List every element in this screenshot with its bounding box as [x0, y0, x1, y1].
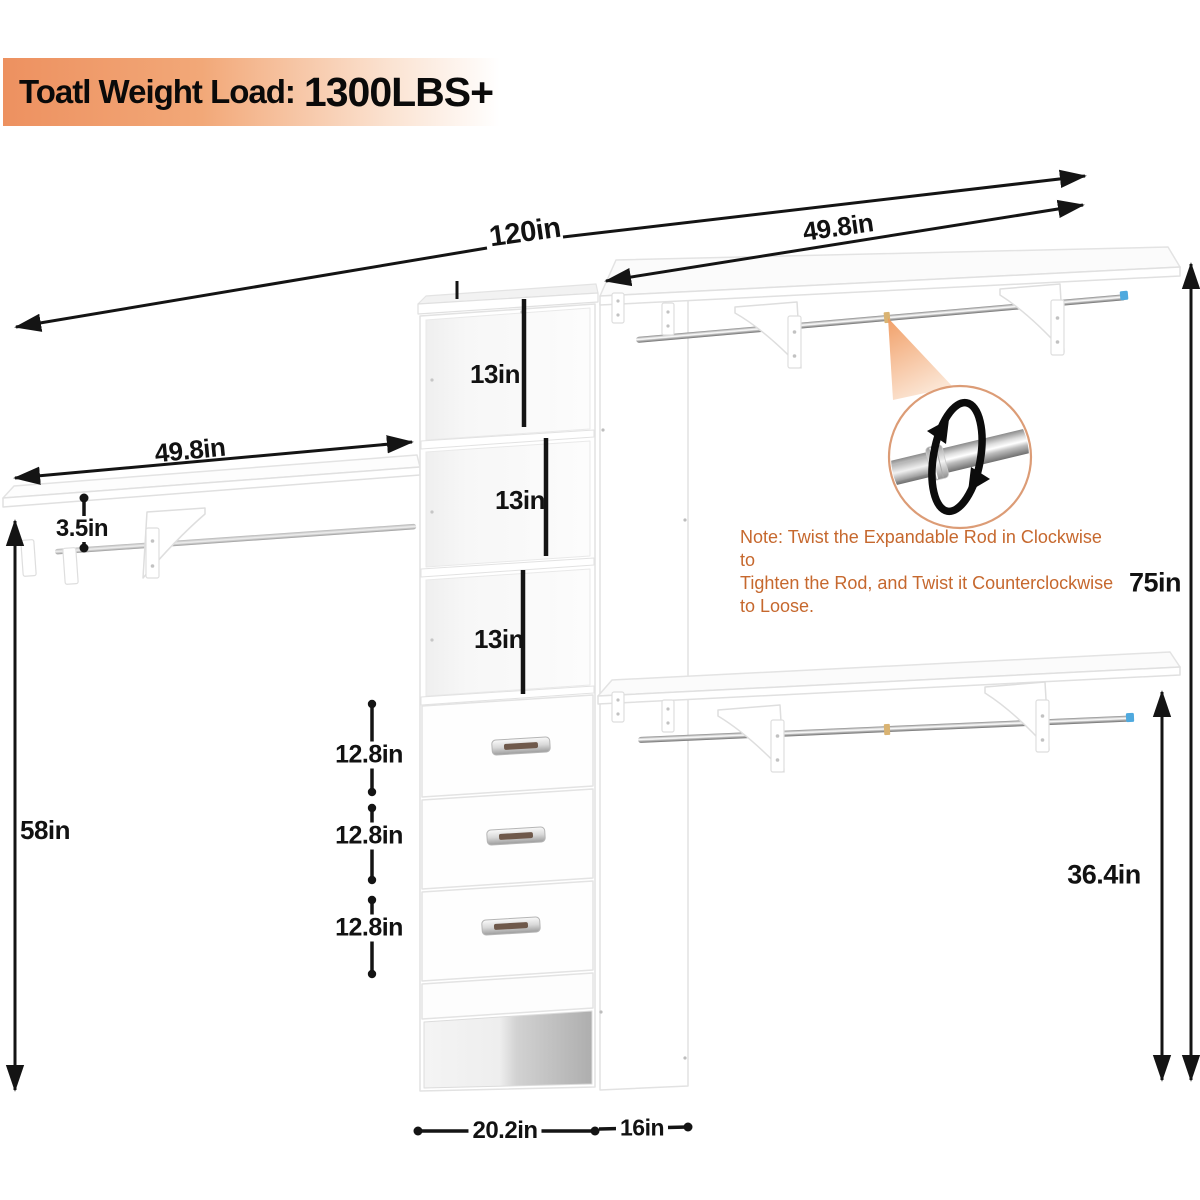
- dim-label-tower-width: 20.2in: [468, 1118, 541, 1144]
- weight-load-banner: Toatl Weight Load: 1300LBS+: [3, 58, 500, 126]
- bottom-rod-end-cap: [1126, 713, 1134, 722]
- dim-label-left-height: 58in: [20, 817, 70, 843]
- closet-furniture: [3, 247, 1180, 1091]
- top-rod-end-cap: [1120, 291, 1129, 301]
- drawer-stack: [422, 695, 593, 1088]
- top-shelf-bracket-2: [1000, 284, 1064, 355]
- dim-label-rod-height: 36.4in: [1067, 862, 1141, 889]
- bottom-rod-collar: [884, 724, 890, 735]
- dim-label-shelf-rod-gap: 3.5in: [52, 516, 112, 542]
- note-line-1: Note: Twist the Expandable Rod in Clockw…: [740, 526, 1120, 572]
- dim-label-cubby-1: 13in: [470, 361, 520, 387]
- top-shelf: [600, 247, 1180, 305]
- bottom-shelf-bracket-2: [985, 682, 1049, 752]
- dim-label-drawer-3: 12.8in: [331, 915, 407, 942]
- banner-label: Toatl Weight Load:: [19, 73, 295, 111]
- dim-label-drawer-2: 12.8in: [331, 823, 407, 850]
- dim-label-drawer-1: 12.8in: [331, 742, 407, 769]
- dim-line-120in-left: [16, 248, 487, 327]
- base-opening: [424, 1011, 592, 1088]
- banner-value: 1300LBS+: [304, 69, 493, 116]
- note-line-2: Tighten the Rod, and Twist it Counterclo…: [740, 572, 1120, 618]
- dim-label-cubby-3: 13in: [474, 626, 524, 652]
- drawer-handle-2: [487, 827, 546, 846]
- dim-label-side-depth: 16in: [616, 1116, 668, 1141]
- dim-label-overall-height: 75in: [1129, 570, 1181, 597]
- top-shelf-bracket-1: [735, 302, 801, 368]
- closet-dimension-diagram: Toatl Weight Load: 1300LBS+ 120in 49.8in…: [0, 0, 1200, 1200]
- rod-detail-inset: [878, 318, 1046, 528]
- drawer-handle-3: [482, 917, 541, 936]
- rod-instruction-note: Note: Twist the Expandable Rod in Clockw…: [740, 526, 1120, 618]
- dim-label-left-shelf-width: 49.8in: [154, 434, 227, 467]
- dim-label-cubby-2: 13in: [495, 487, 545, 513]
- drawer-handle-1: [492, 737, 551, 756]
